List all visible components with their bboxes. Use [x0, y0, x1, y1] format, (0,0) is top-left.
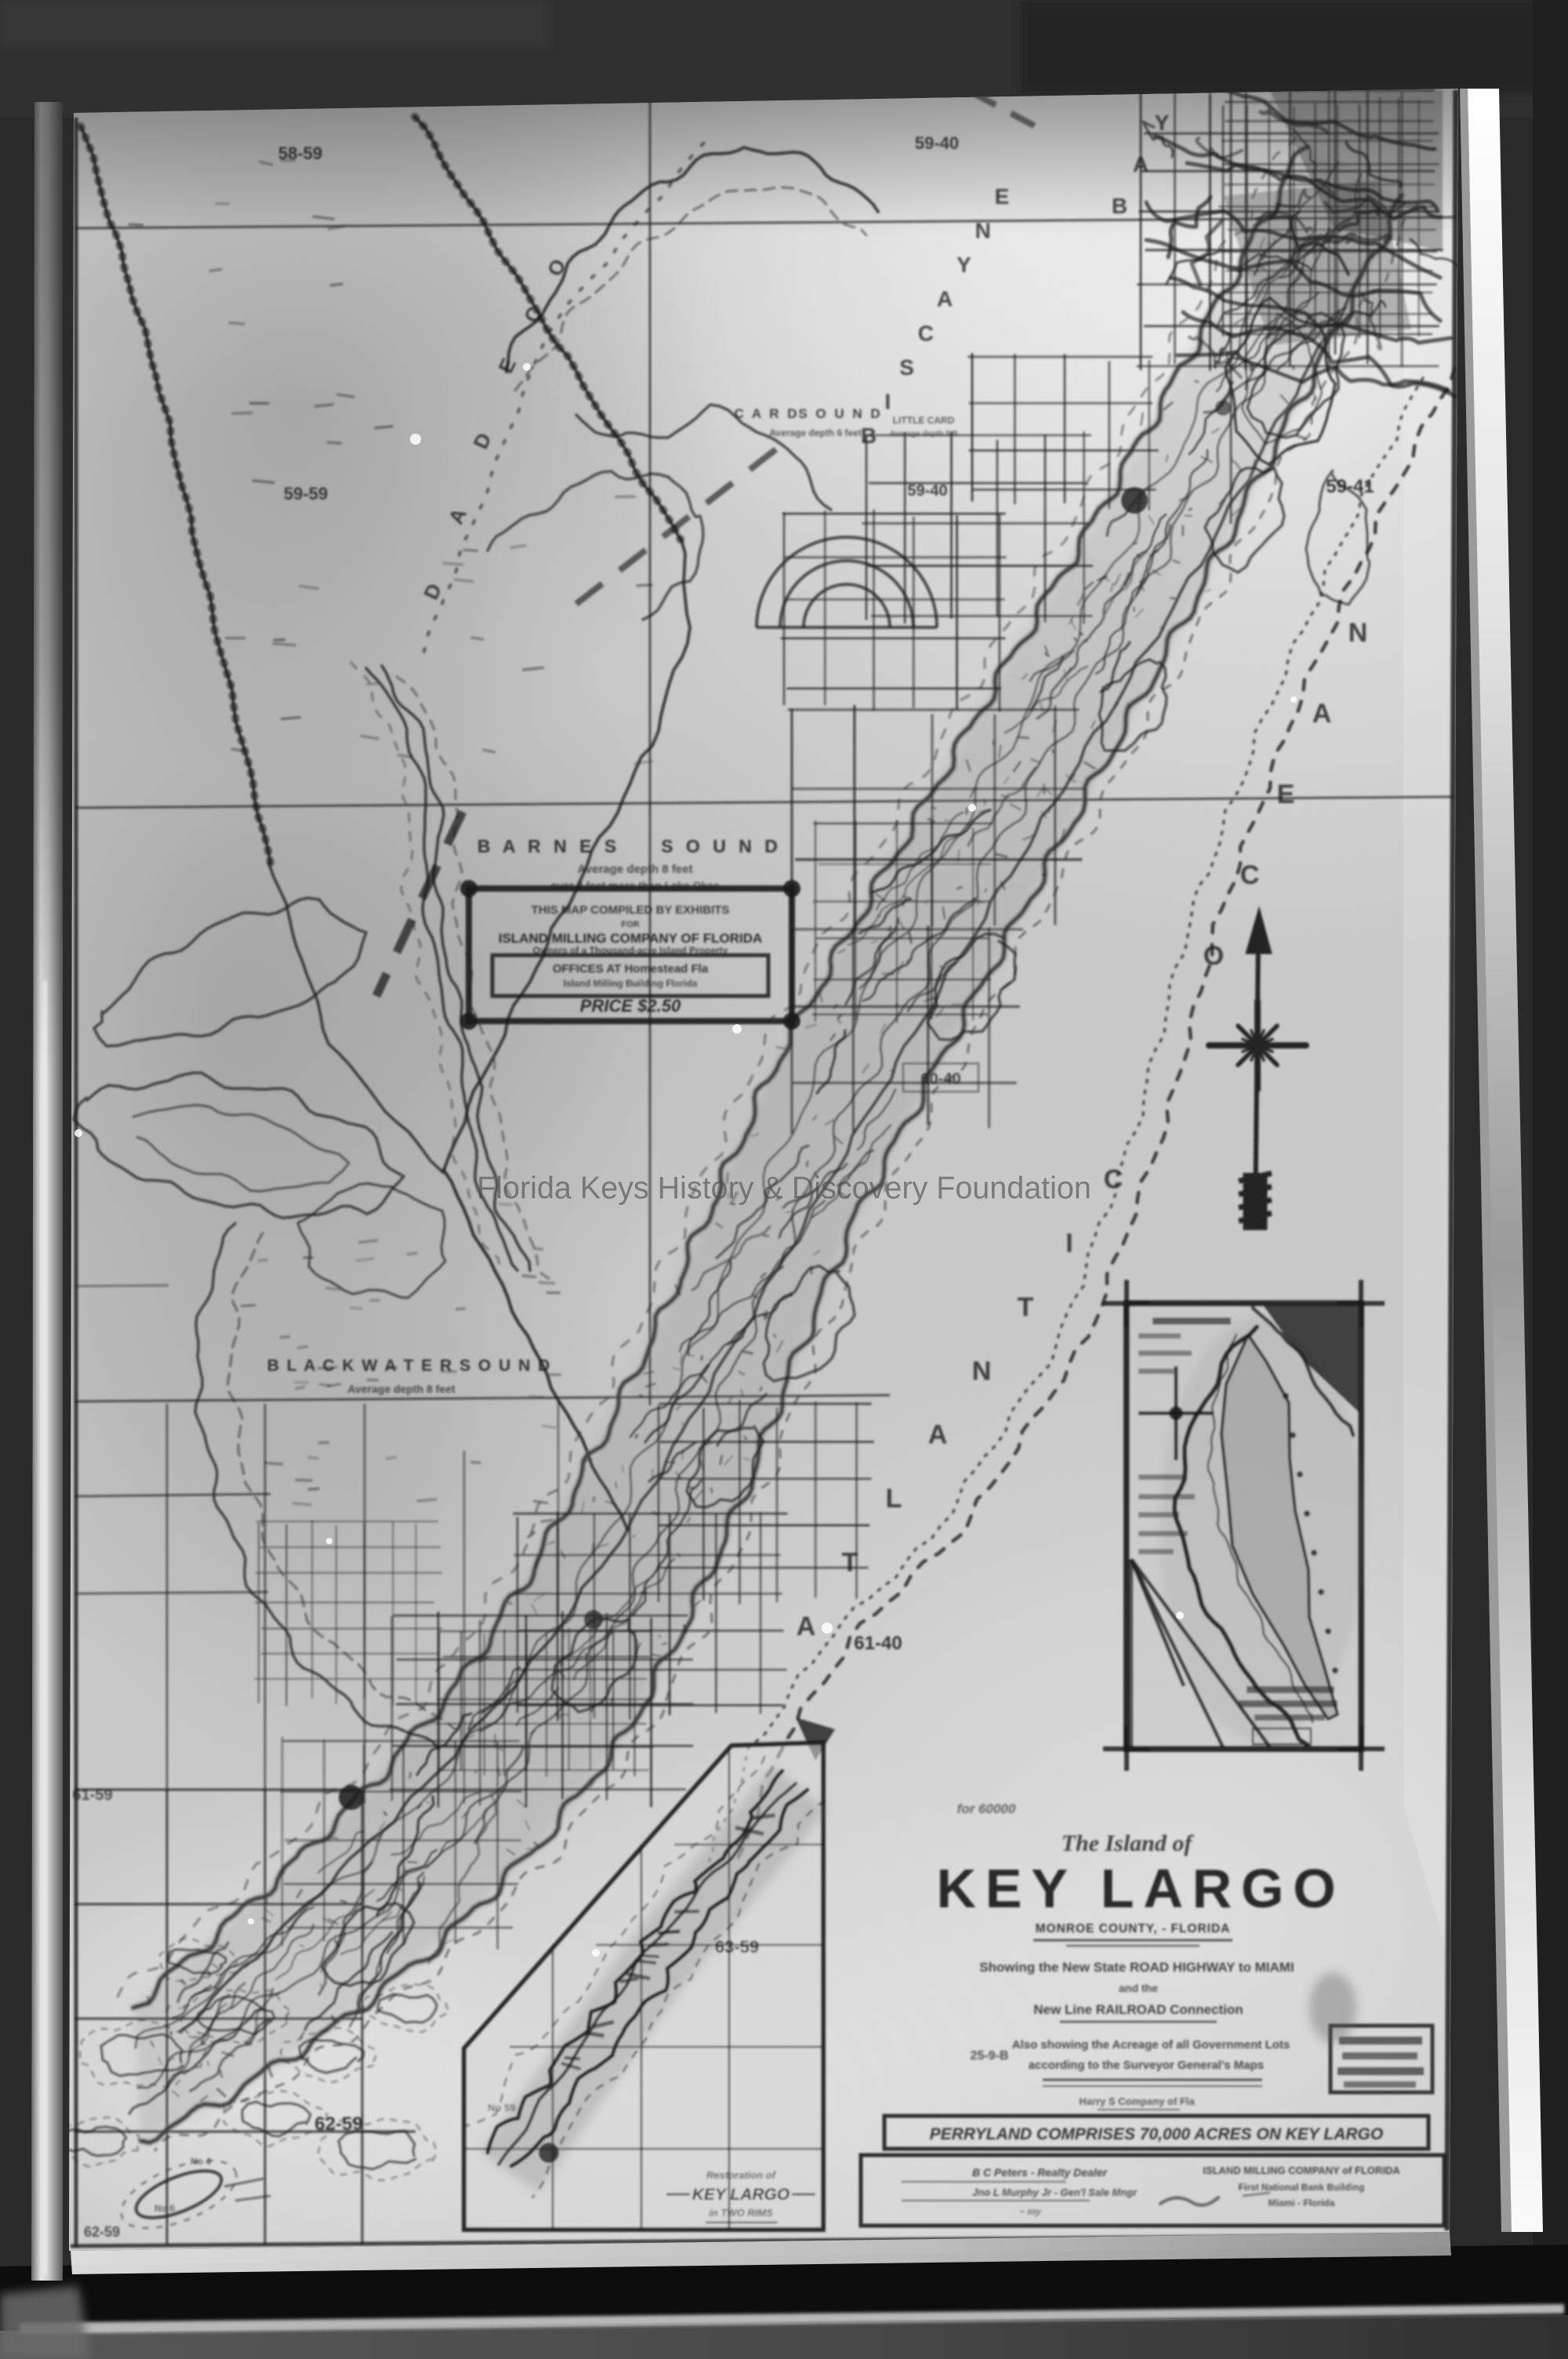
svg-text:Florida Keys History & Discove: Florida Keys History & Discovery Foundat…: [477, 1171, 1091, 1205]
